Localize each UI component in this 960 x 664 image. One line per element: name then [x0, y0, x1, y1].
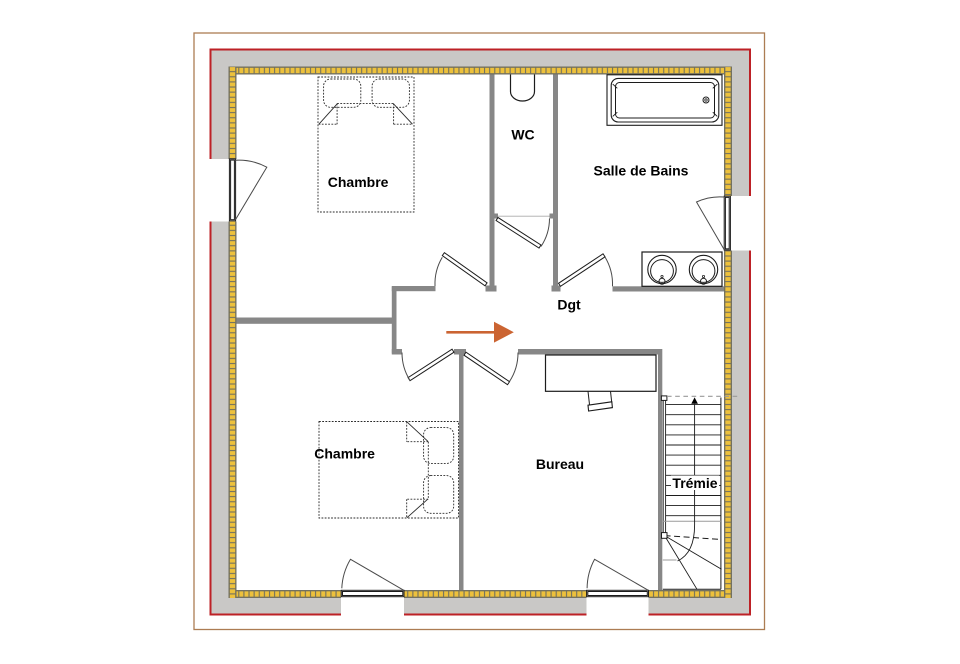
svg-text:Chambre: Chambre — [314, 446, 375, 462]
svg-text:Dgt: Dgt — [557, 297, 581, 313]
svg-text:WC: WC — [511, 127, 534, 143]
svg-text:Trémie: Trémie — [672, 475, 717, 491]
svg-text:Bureau: Bureau — [536, 456, 584, 472]
svg-text:Salle de Bains: Salle de Bains — [594, 163, 689, 179]
svg-text:Chambre: Chambre — [328, 174, 389, 190]
